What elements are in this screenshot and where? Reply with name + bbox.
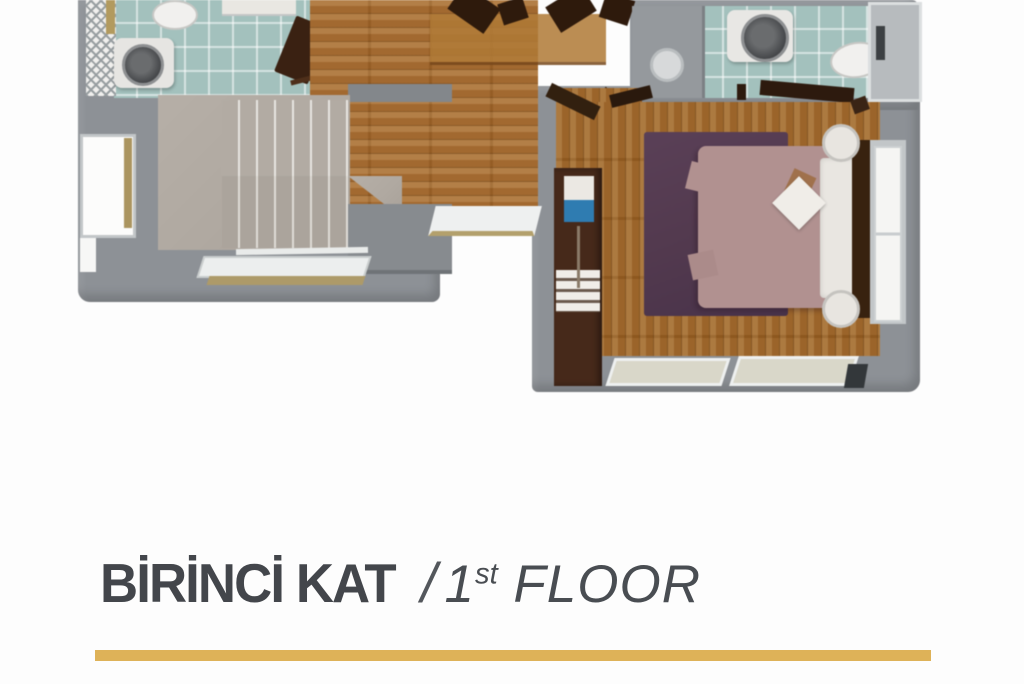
nightstand-lamp bbox=[822, 290, 860, 328]
right-window bbox=[874, 146, 902, 322]
stairs-threshold bbox=[196, 256, 371, 278]
caption-turkish: BİRİNCİ KAT bbox=[100, 551, 395, 615]
tv-screen-top bbox=[564, 176, 594, 200]
floor-plan-page: BİRİNCİ KAT/1st FLOOR bbox=[0, 0, 1024, 684]
left-lower-window bbox=[80, 238, 96, 272]
left-window-frame-trim bbox=[124, 138, 132, 228]
stair-flight-lower bbox=[222, 176, 350, 248]
floor-caption: BİRİNCİ KAT/1st FLOOR bbox=[100, 550, 701, 615]
bathroom-a-shelf bbox=[222, 0, 296, 16]
sink bbox=[650, 48, 684, 82]
wardrobe-pole bbox=[577, 226, 580, 288]
nightstand-lamp bbox=[822, 124, 860, 162]
bathroom-a-wood-trim bbox=[106, 0, 115, 34]
caption-english-ordinal: st bbox=[475, 558, 498, 590]
stairs-threshold-edge bbox=[207, 276, 366, 285]
hall-threshold bbox=[428, 206, 541, 236]
washing-machine-drum bbox=[741, 14, 789, 62]
gold-divider bbox=[95, 650, 931, 661]
floor-plan-3d-render bbox=[0, 0, 1024, 420]
balcony-window-sill bbox=[605, 358, 730, 386]
balcony-corner-shadow bbox=[844, 364, 868, 388]
bed-duvet-fold bbox=[688, 250, 719, 281]
dining-table bbox=[430, 14, 606, 65]
toilet bbox=[152, 0, 198, 30]
washing-machine-drum bbox=[122, 44, 164, 86]
stair-flight-upper bbox=[222, 100, 348, 176]
tv-screen-bottom bbox=[564, 200, 594, 222]
caption-english-number: 1 bbox=[445, 555, 475, 614]
bathroom-b-door-hinge bbox=[737, 84, 746, 100]
stairs-half-wall bbox=[348, 84, 452, 102]
shower-fixture bbox=[876, 26, 885, 60]
balcony-window-sill bbox=[729, 356, 859, 386]
headboard bbox=[852, 140, 872, 318]
caption-english-word: FLOOR bbox=[513, 555, 701, 614]
caption-english: 1st FLOOR bbox=[445, 555, 701, 614]
caption-separator: / bbox=[421, 551, 437, 614]
